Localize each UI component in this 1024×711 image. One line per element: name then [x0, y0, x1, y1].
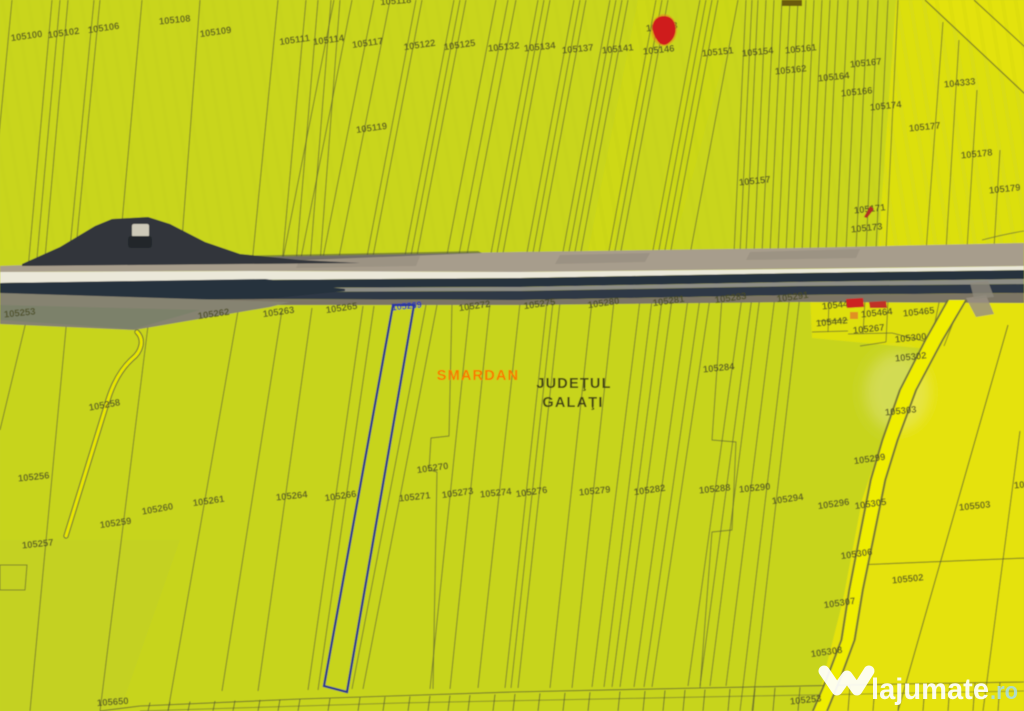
- svg-text:SMARDAN: SMARDAN: [437, 368, 520, 384]
- svg-text:GALAŢI: GALAŢI: [542, 395, 603, 411]
- svg-text:.ro: .ro: [990, 678, 1018, 705]
- svg-text:JUDEŢUL: JUDEŢUL: [536, 376, 611, 392]
- svg-text:105650: 105650: [97, 696, 129, 709]
- svg-text:lajumate: lajumate: [871, 673, 989, 706]
